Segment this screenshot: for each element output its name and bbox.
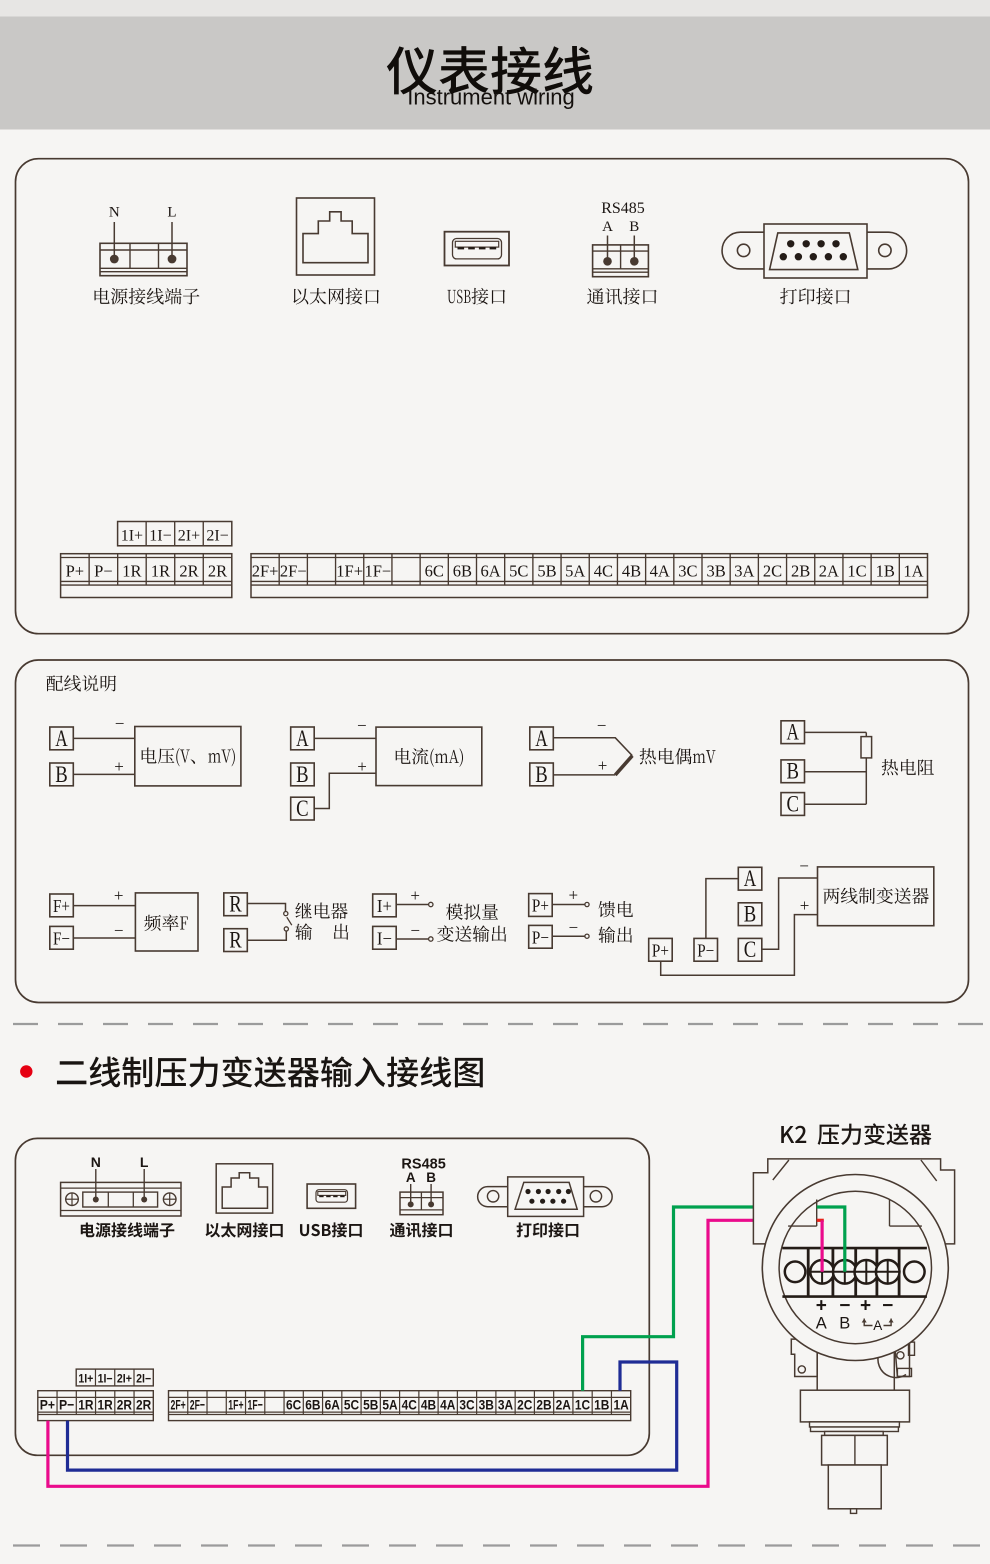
svg-text:4B: 4B (622, 562, 641, 581)
svg-text:4C: 4C (594, 562, 613, 581)
svg-text:B: B (535, 762, 548, 787)
svg-text:2F+: 2F+ (252, 562, 279, 581)
svg-text:3C: 3C (459, 1396, 474, 1412)
svg-text:4A: 4A (650, 562, 670, 581)
svg-text:2A: 2A (819, 562, 839, 581)
svg-text:1B: 1B (876, 562, 895, 581)
svg-text:C: C (744, 937, 757, 962)
svg-text:A: A (296, 726, 309, 751)
svg-text:2C: 2C (763, 562, 782, 581)
svg-text:3B: 3B (479, 1396, 494, 1412)
svg-text:N: N (109, 205, 120, 221)
svg-text:R: R (229, 927, 242, 952)
svg-text:B: B (296, 762, 309, 787)
svg-text:F−: F− (53, 928, 70, 948)
svg-text:−: − (597, 716, 607, 735)
svg-text:I+: I+ (377, 896, 392, 916)
svg-text:P−: P− (94, 562, 112, 581)
svg-text:A: A (602, 219, 613, 235)
svg-text:P+: P+ (40, 1396, 55, 1412)
svg-text:6B: 6B (453, 562, 472, 581)
svg-text:I−: I− (377, 928, 392, 948)
svg-text:+: + (569, 886, 579, 905)
svg-text:+: + (860, 1296, 871, 1317)
svg-text:3A: 3A (498, 1396, 513, 1412)
svg-text:4A: 4A (440, 1396, 455, 1412)
svg-text:2A: 2A (556, 1396, 571, 1412)
svg-text:A: A (744, 866, 757, 891)
svg-text:1F−: 1F− (248, 1396, 263, 1412)
svg-text:RS485: RS485 (601, 200, 645, 217)
svg-text:1F−: 1F− (364, 562, 391, 581)
svg-text:6A: 6A (481, 562, 501, 581)
svg-text:2F+: 2F+ (170, 1396, 185, 1412)
svg-text:1A: 1A (903, 562, 923, 581)
svg-text:A: A (786, 720, 799, 745)
svg-text:5B: 5B (363, 1396, 378, 1412)
svg-text:−: − (357, 716, 367, 735)
svg-text:−: − (114, 921, 124, 940)
svg-text:L: L (167, 205, 176, 221)
svg-text:1I+: 1I+ (78, 1371, 93, 1385)
svg-text:+: + (800, 896, 810, 915)
svg-text:Instrument wiring: Instrument wiring (407, 85, 575, 110)
svg-text:2C: 2C (517, 1396, 532, 1412)
svg-text:2R: 2R (179, 562, 198, 581)
svg-text:6C: 6C (425, 562, 444, 581)
svg-text:A: A (873, 1318, 882, 1333)
svg-text:B: B (55, 762, 68, 787)
svg-text:−: − (799, 857, 809, 876)
svg-text:2I+: 2I+ (117, 1371, 132, 1385)
svg-text:1R: 1R (98, 1396, 113, 1412)
svg-text:4B: 4B (421, 1396, 436, 1412)
svg-text:2R: 2R (136, 1396, 151, 1412)
svg-text:3A: 3A (734, 562, 754, 581)
svg-text:1A: 1A (613, 1396, 628, 1412)
svg-text:1B: 1B (594, 1396, 609, 1412)
svg-text:P−: P− (697, 940, 714, 960)
svg-text:1C: 1C (847, 562, 866, 581)
svg-text:B: B (839, 1315, 850, 1333)
svg-text:6C: 6C (286, 1396, 301, 1412)
svg-text:2R: 2R (117, 1396, 132, 1412)
svg-text:5A: 5A (382, 1396, 397, 1412)
svg-text:−: − (569, 918, 579, 937)
svg-text:5B: 5B (537, 562, 556, 581)
svg-text:1I−: 1I− (98, 1371, 113, 1385)
svg-text:2I+: 2I+ (178, 527, 200, 544)
svg-text:−: − (882, 1296, 893, 1317)
svg-text:6B: 6B (305, 1396, 320, 1412)
svg-text:2F−: 2F− (280, 562, 307, 581)
svg-text:A: A (535, 726, 548, 751)
svg-text:B: B (426, 1170, 436, 1185)
svg-text:N: N (91, 1154, 101, 1170)
svg-text:P+: P+ (532, 896, 549, 916)
svg-text:C: C (786, 791, 799, 816)
svg-text:+: + (114, 757, 124, 776)
svg-text:1I−: 1I− (149, 527, 171, 544)
svg-text:2I−: 2I− (136, 1371, 151, 1385)
svg-text:P+: P+ (652, 940, 669, 960)
svg-text:L: L (140, 1154, 149, 1170)
svg-text:1R: 1R (78, 1396, 93, 1412)
svg-text:2B: 2B (536, 1396, 551, 1412)
svg-text:+: + (410, 886, 420, 905)
svg-text:−: − (115, 714, 125, 733)
svg-text:B: B (786, 759, 799, 784)
svg-text:A: A (406, 1170, 416, 1185)
svg-text:3C: 3C (678, 562, 697, 581)
svg-text:A: A (55, 726, 68, 751)
svg-text:B: B (744, 902, 757, 927)
svg-text:6A: 6A (325, 1396, 340, 1412)
svg-text:2B: 2B (791, 562, 810, 581)
svg-text:+: + (816, 1296, 827, 1317)
svg-text:−: − (839, 1296, 850, 1317)
svg-text:2R: 2R (208, 562, 227, 581)
svg-text:+: + (598, 756, 608, 775)
svg-text:1R: 1R (122, 562, 141, 581)
svg-text:A: A (816, 1315, 827, 1333)
svg-text:R: R (229, 892, 242, 917)
svg-text:2F−: 2F− (190, 1396, 205, 1412)
svg-text:3B: 3B (706, 562, 725, 581)
svg-text:−: − (410, 921, 420, 940)
svg-text:C: C (296, 796, 309, 821)
svg-text:4C: 4C (402, 1396, 417, 1412)
svg-text:1F+: 1F+ (336, 562, 363, 581)
svg-text:1R: 1R (151, 562, 170, 581)
svg-text:5C: 5C (509, 562, 528, 581)
svg-text:P−: P− (59, 1396, 74, 1412)
svg-text:F+: F+ (53, 896, 70, 916)
svg-text:1I+: 1I+ (121, 527, 143, 544)
svg-text:+: + (114, 886, 124, 905)
svg-text:P+: P+ (66, 562, 84, 581)
svg-text:P−: P− (532, 927, 549, 947)
svg-text:1C: 1C (575, 1396, 590, 1412)
svg-text:5C: 5C (344, 1396, 359, 1412)
svg-text:B: B (629, 219, 639, 235)
svg-text:5A: 5A (565, 562, 585, 581)
svg-text:1F+: 1F+ (228, 1396, 243, 1412)
svg-text:2I−: 2I− (206, 527, 228, 544)
